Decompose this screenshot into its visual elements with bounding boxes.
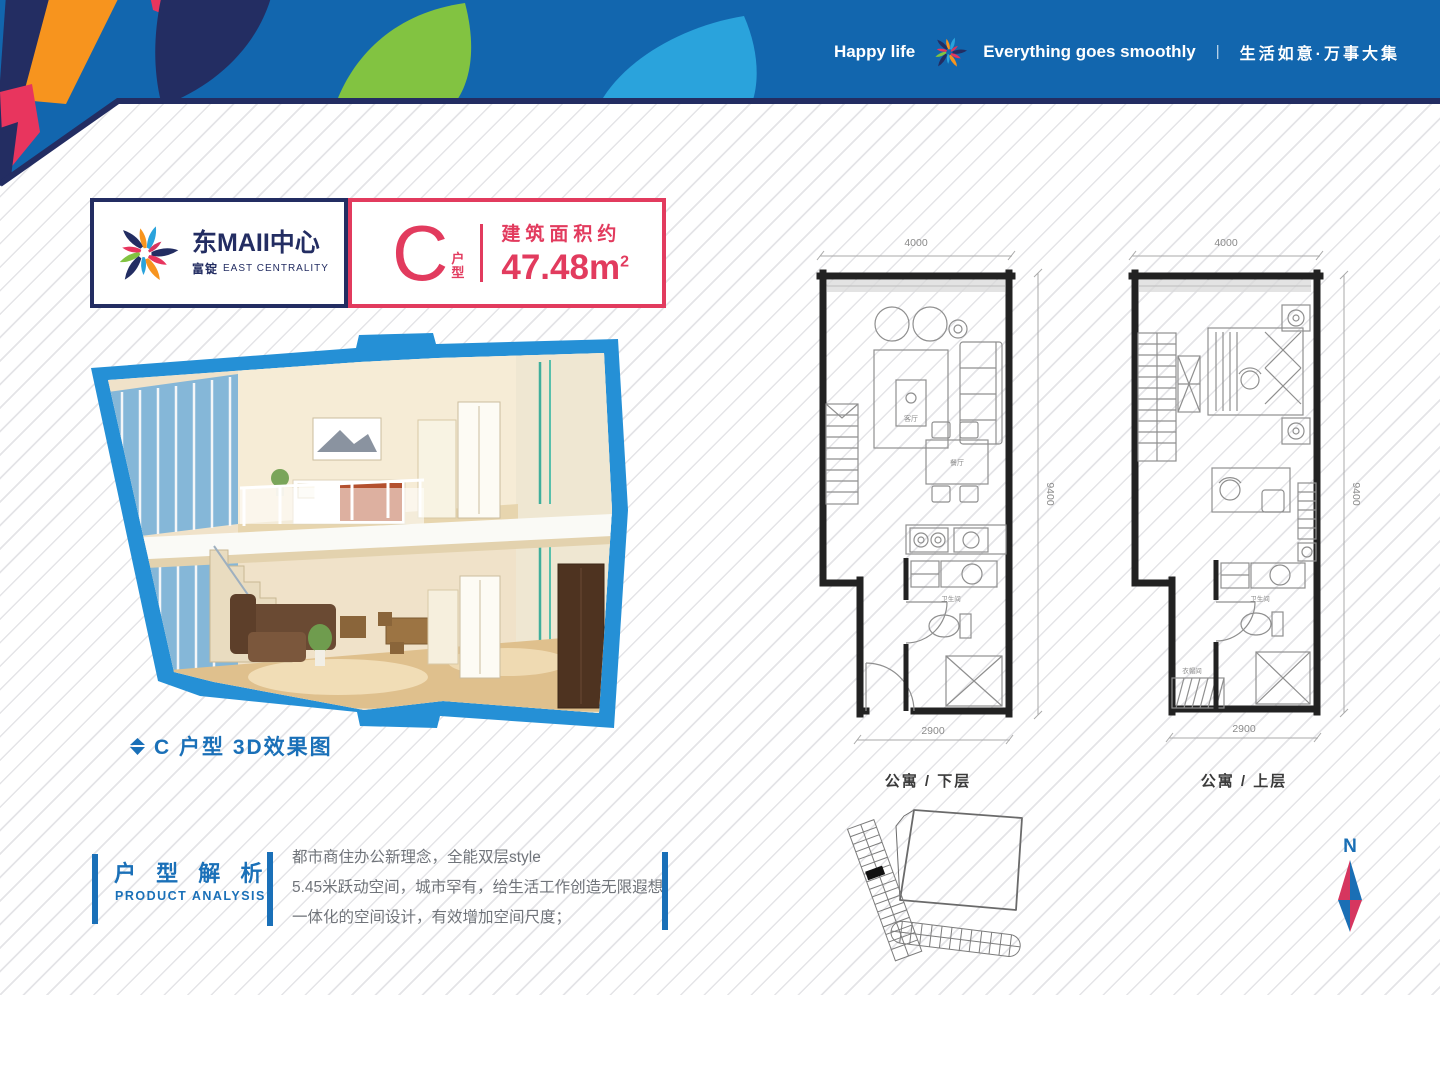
render-caption-text: C 户型 3D效果图 <box>154 731 333 761</box>
header-greeting: Happy life <box>834 42 915 62</box>
dim-bottom: 2900 <box>921 725 945 737</box>
north-compass: N <box>1322 830 1378 942</box>
label-closet: 衣帽间 <box>1182 666 1202 675</box>
brand-logo-box: 东MAII中心 富锭 EAST CENTRALITY <box>90 198 348 308</box>
render-caption: C 户型 3D效果图 <box>130 731 333 761</box>
analysis-bar-right <box>662 852 668 930</box>
brand-name: 东MAII中心 <box>192 229 329 257</box>
label-dining: 餐厅 <box>950 458 964 467</box>
dim-bottom: 2900 <box>1232 723 1256 735</box>
brand-pinwheel-icon <box>108 216 182 290</box>
render-3d-image <box>88 332 636 730</box>
area-value: 47.48m2 <box>501 248 629 288</box>
plan-upper-caption: 公寓 / 上层 <box>1201 772 1288 790</box>
walls <box>1132 273 1320 712</box>
band-border-line <box>0 101 1440 184</box>
unit-info-box: C 户 型 建筑面积约 47.48m2 <box>348 198 666 308</box>
brochure-page: Happy life Everything goes smoothly | 生活… <box>0 0 1440 1080</box>
unit-letter: C <box>392 214 448 292</box>
dim-right: 9400 <box>1350 482 1362 506</box>
furniture-lower <box>826 307 1006 711</box>
analysis-bar-left <box>92 854 98 924</box>
analysis-text: 都市商住办公新理念，全能双层style 5.45米跃动空间，城市罕有，给生活工作… <box>292 843 672 933</box>
header-slogan-en: Everything goes smoothly <box>983 42 1196 62</box>
label-bath: 卫生间 <box>1250 594 1270 603</box>
walls <box>820 273 1012 714</box>
header-slogans: Happy life Everything goes smoothly | 生活… <box>830 0 1400 103</box>
header-pinwheel-icon <box>929 32 969 72</box>
plan-lower-caption: 公寓 / 下层 <box>885 772 972 790</box>
label-living: 客厅 <box>904 414 918 423</box>
analysis-title-en: PRODUCT ANALYSIS <box>115 889 266 903</box>
unit-divider <box>480 224 483 282</box>
brand-sub-cn: 富锭 <box>192 260 218 277</box>
header-divider: | <box>1216 43 1220 60</box>
analysis-bar-mid <box>267 852 273 926</box>
unit-location-marker <box>865 866 885 881</box>
header-slogan-cn: 生活如意·万事大集 <box>1240 40 1400 64</box>
site-key-plan <box>826 794 1038 966</box>
dim-right: 9400 <box>1044 482 1056 506</box>
analysis-line-3: 一体化的空间设计，有效增加空间尺度； <box>292 903 672 933</box>
furniture-upper <box>1138 305 1316 708</box>
dim-top: 4000 <box>904 237 928 249</box>
unit-type-label: 户 型 <box>451 252 464 280</box>
compass-needle-icon <box>1338 860 1362 932</box>
analysis-title-cn: 户 型 解 析 <box>114 856 269 888</box>
floorplan-lower: 4000 9400 2900 <box>770 228 1060 803</box>
analysis-line-2: 5.45米跃动空间，城市罕有，给生活工作创造无限遐想 <box>292 873 672 903</box>
diamond-icon <box>130 738 145 755</box>
area-label: 建筑面积约 <box>501 219 629 246</box>
brand-sub-en: EAST CENTRALITY <box>223 263 329 274</box>
label-bath: 卫生间 <box>941 594 961 603</box>
analysis-line-1: 都市商住办公新理念，全能双层style <box>292 843 672 873</box>
north-label: N <box>1343 836 1357 857</box>
dim-top: 4000 <box>1214 237 1238 249</box>
floorplan-upper: 4000 9400 2900 <box>1080 228 1370 803</box>
